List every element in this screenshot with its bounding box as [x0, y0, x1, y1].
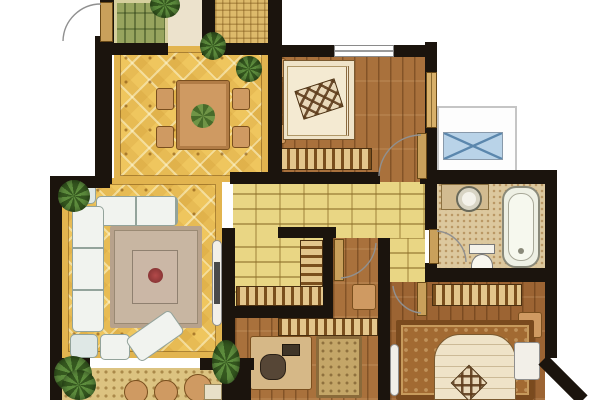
wall: [95, 36, 112, 184]
closet-cabinet-bottom: [236, 286, 324, 306]
dining-chair: [232, 88, 250, 110]
bathtub-drain: [518, 248, 524, 254]
bedroom2-shelf: [352, 284, 376, 310]
plant-living-top: [58, 180, 90, 212]
window-bedroom1-right: [426, 72, 437, 128]
wall: [378, 238, 390, 400]
wardrobe-master: [432, 284, 522, 306]
armchair: [100, 334, 130, 360]
corner-side-table: [70, 334, 98, 358]
wall: [437, 170, 557, 184]
plant-balcony-left: [62, 370, 96, 400]
balcony-seat: [124, 380, 148, 400]
plant-dining: [236, 56, 262, 82]
dining-chair: [156, 126, 174, 148]
wall: [230, 172, 380, 184]
wall: [425, 184, 437, 230]
dining-centerpiece-plant: [191, 104, 215, 128]
chamfer-wall: [543, 360, 583, 400]
wall: [323, 238, 333, 314]
dining-chair: [156, 88, 174, 110]
toilet-tank: [469, 244, 495, 254]
wall: [425, 268, 557, 282]
window-bedroom1-top: [334, 45, 394, 57]
balcony-box: [204, 384, 222, 400]
dining-chair: [232, 126, 250, 148]
coffee-table-flowers: [148, 268, 163, 283]
bedroom2-door-leaf: [334, 239, 344, 281]
ac-unit-box: [443, 132, 503, 160]
plant-utility: [200, 32, 226, 60]
wardrobe-bedroom1: [268, 148, 372, 170]
floor-plan: [0, 0, 600, 400]
wall: [278, 227, 336, 238]
master-door-leaf-open: [390, 344, 399, 396]
room-corridor-south: [385, 238, 425, 282]
entry-door-leaf: [100, 2, 113, 42]
plant-balcony-right: [212, 340, 240, 384]
desk-chair: [260, 354, 286, 380]
bedroom1-door-leaf: [417, 133, 427, 179]
wall: [282, 45, 334, 57]
bathroom-door-leaf: [429, 229, 439, 264]
wall: [233, 306, 333, 318]
tv-screen: [214, 262, 220, 304]
sofa-left-section: [72, 206, 104, 332]
wall: [112, 43, 168, 55]
sofa-top-section: [96, 196, 178, 226]
desk-laptop: [282, 344, 300, 356]
master-door-leaf: [417, 282, 427, 316]
wall: [268, 0, 282, 184]
bath-sink: [456, 186, 482, 212]
master-dresser: [514, 342, 540, 380]
wardrobe-bedroom2: [278, 318, 378, 336]
balcony-seat: [154, 380, 178, 400]
bedroom2-rug: [316, 336, 362, 398]
